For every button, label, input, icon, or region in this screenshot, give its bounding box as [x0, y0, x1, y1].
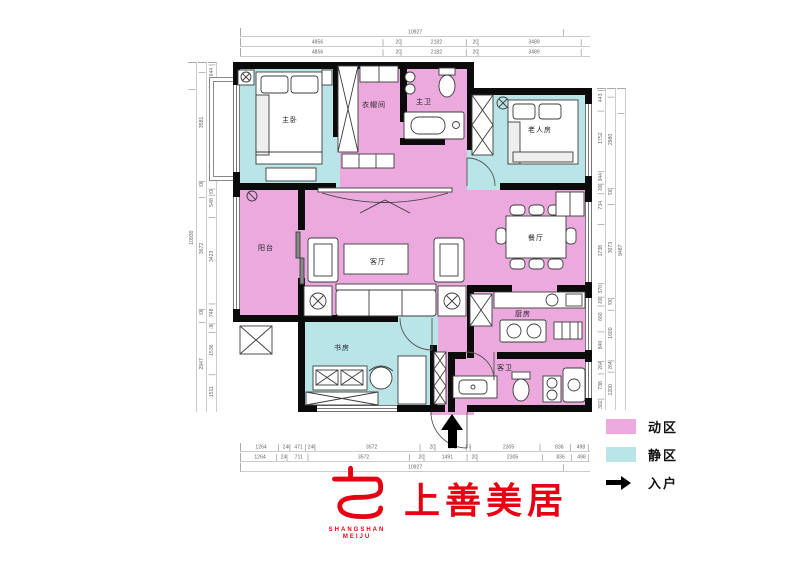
label-balcony: 阳台 — [258, 243, 274, 253]
legend-entry: 入户 — [606, 473, 678, 492]
quiet-zone-swatch — [606, 447, 636, 462]
label-study: 书房 — [334, 343, 350, 353]
label-master-bedroom: 主卧 — [282, 115, 298, 125]
label-master-bath: 主卫 — [416, 97, 432, 107]
active-zone-label: 动区 — [648, 417, 678, 436]
active-zone-swatch — [606, 419, 636, 434]
logo-s-icon — [326, 464, 388, 522]
floorplan-page: { "plan": { "zones": { "active_color": "… — [0, 0, 800, 564]
logo-cn-text: 上善美居 — [404, 472, 568, 524]
brand-logo: SHANGSHAN MEIJU 上善美居 — [322, 464, 568, 541]
logo-mark: SHANGSHAN MEIJU — [322, 464, 392, 541]
entry-label: 入户 — [648, 473, 678, 492]
legend-quiet-zone: 静区 — [606, 445, 678, 464]
legend-active-zone: 动区 — [606, 417, 678, 436]
label-cloakroom: 衣帽间 — [362, 100, 386, 110]
label-guest-bath: 客卫 — [497, 363, 513, 373]
quiet-zone-label: 静区 — [648, 445, 678, 464]
legend: 动区 静区 入户 — [606, 417, 678, 501]
label-living-room: 客厅 — [370, 257, 386, 267]
logo-en-line1: SHANGSHAN — [322, 527, 392, 534]
entry-arrow-icon — [441, 414, 463, 448]
label-elder-room: 老人房 — [528, 125, 552, 135]
label-kitchen: 厨房 — [515, 309, 531, 319]
logo-en-line2: MEIJU — [322, 534, 392, 541]
entry-arrow-icon — [606, 475, 636, 490]
label-dining-room: 餐厅 — [528, 233, 544, 243]
